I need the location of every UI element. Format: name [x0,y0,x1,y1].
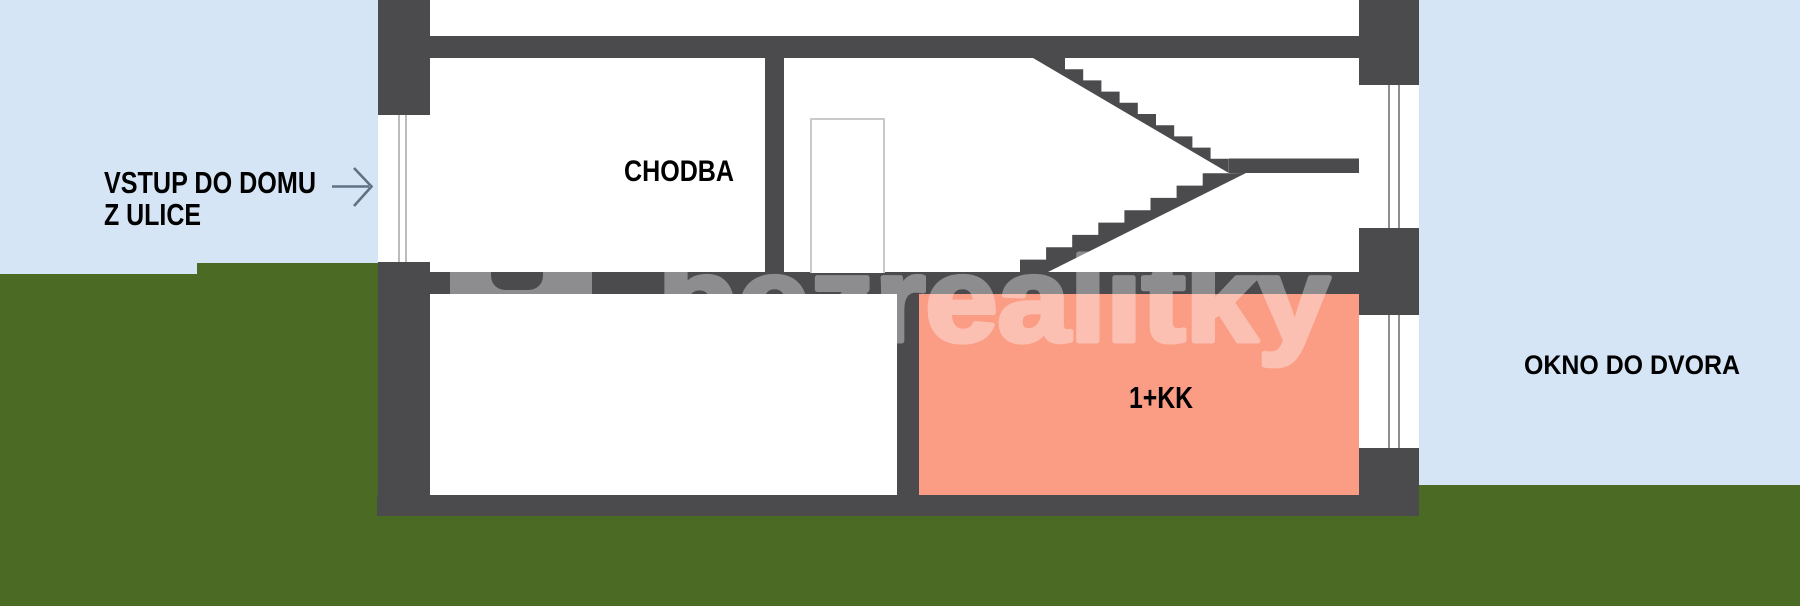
svg-text:OKNO DO DVORA: OKNO DO DVORA [1524,350,1740,380]
svg-text:1+KK: 1+KK [1129,380,1193,415]
svg-text:VSTUP DO DOMU: VSTUP DO DOMU [104,165,316,200]
svg-text:bezrealitky: bezrealitky [658,233,1330,367]
svg-text:Z ULICE: Z ULICE [104,197,201,232]
svg-text:CHODBA: CHODBA [624,155,734,188]
